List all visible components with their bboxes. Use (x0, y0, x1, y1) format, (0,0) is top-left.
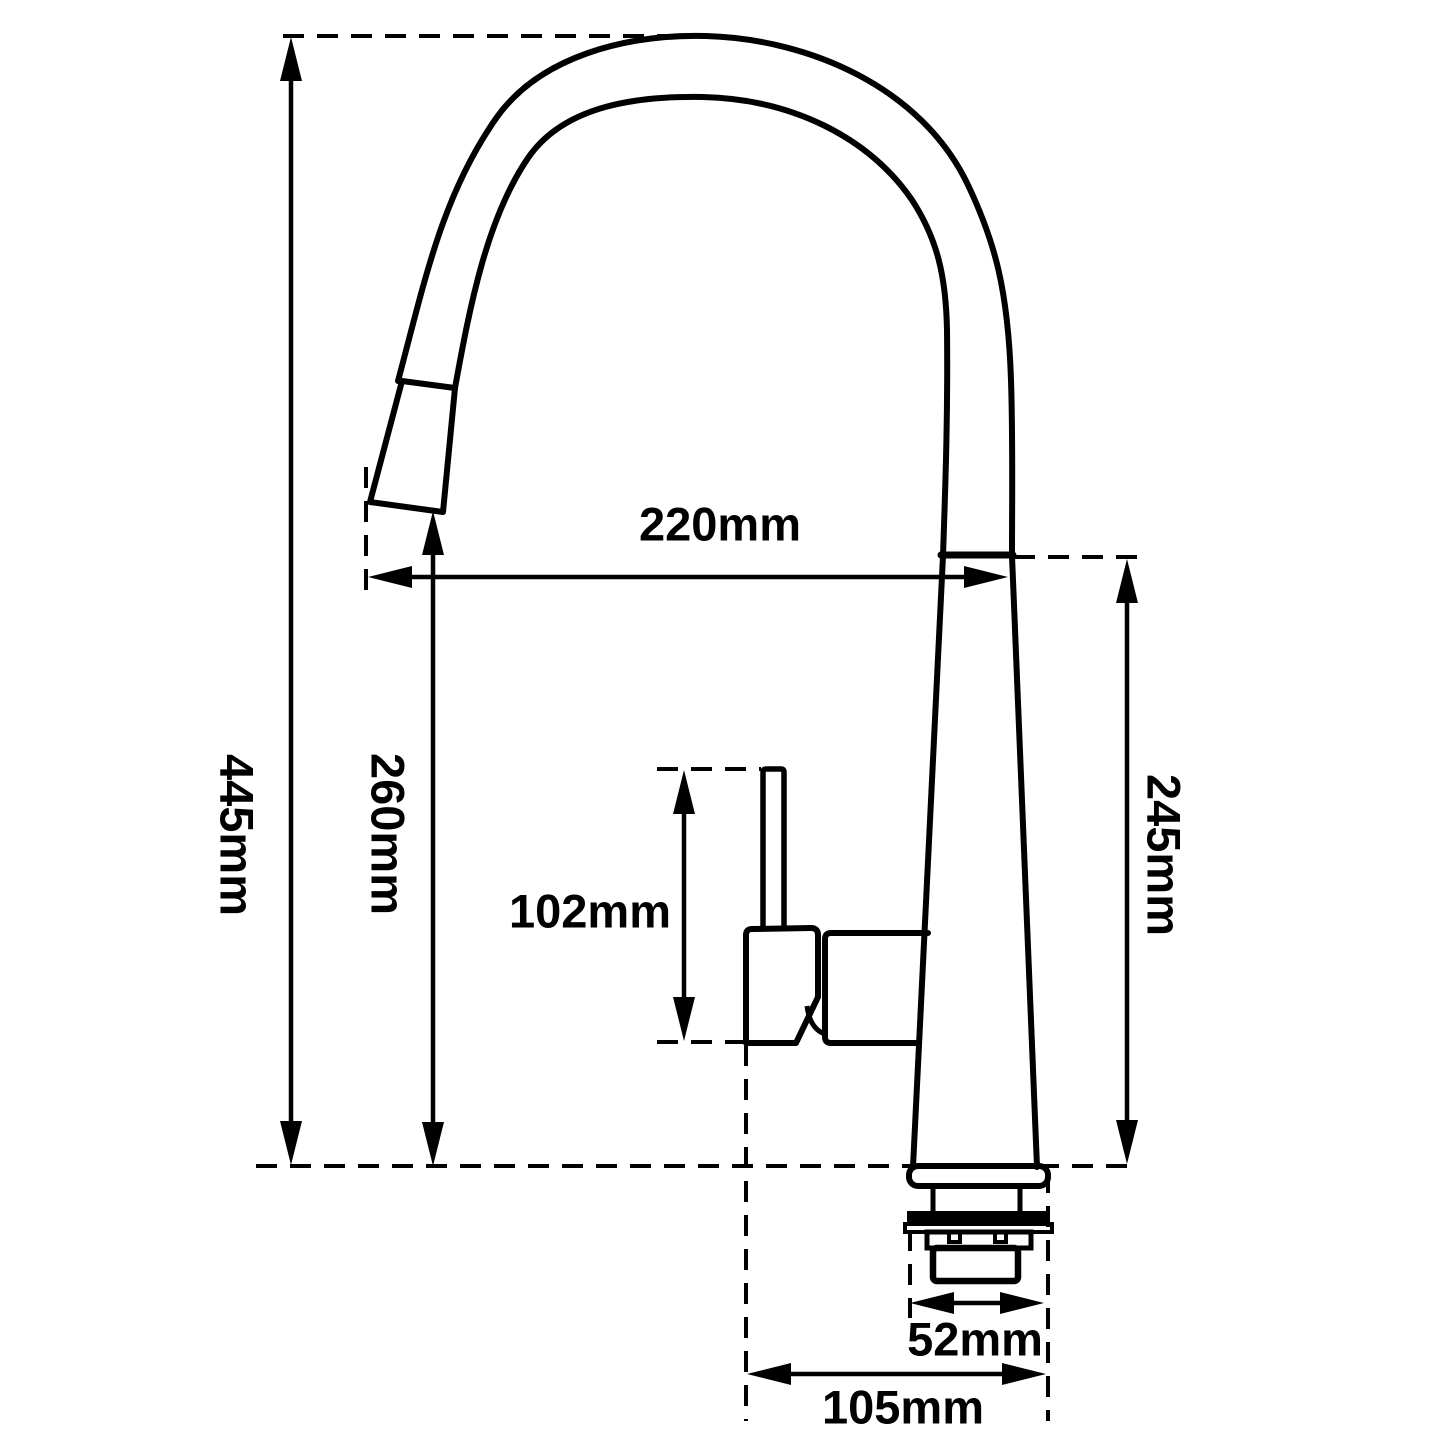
arrowhead-left-icon (747, 1363, 791, 1385)
arrowhead-down-icon (422, 1122, 444, 1166)
arrowhead-right-icon (1000, 1292, 1044, 1314)
dim-label-overall-height: 445mm (211, 754, 264, 916)
arrowhead-down-icon (280, 1121, 302, 1165)
dimension-245: 245mm (1116, 559, 1191, 1164)
arrowhead-up-icon (1116, 559, 1138, 603)
handle-block (746, 928, 818, 1043)
arrowhead-right-icon (964, 566, 1008, 588)
arrowhead-right-icon (1002, 1363, 1046, 1385)
dimension-102: 102mm (509, 770, 695, 1041)
dimension-260: 260mm (362, 511, 445, 1166)
mounting-nut-slot (995, 1232, 1006, 1242)
valve-body (825, 933, 928, 1043)
faucet-outline (370, 36, 1052, 1281)
dimension-220: 220mm (368, 498, 1008, 589)
dimension-52: 52mm (907, 1292, 1044, 1366)
dim-label-body-height: 245mm (1138, 774, 1191, 936)
arrowhead-left-icon (368, 566, 412, 588)
dimension-105: 105mm (747, 1363, 1046, 1434)
dim-label-thread-diameter: 52mm (907, 1313, 1043, 1366)
mounting-nut-slot (949, 1232, 960, 1242)
arrowhead-up-icon (673, 770, 695, 814)
drawing-canvas: 445mm 260mm 220mm 245mm 102mm 52mm 105mm (0, 0, 1445, 1445)
faucet-dimension-drawing: 445mm 260mm 220mm 245mm 102mm 52mm 105mm (0, 0, 1445, 1445)
arrowhead-up-icon (422, 511, 444, 555)
supply-connector (933, 1248, 1018, 1281)
arrowhead-down-icon (673, 997, 695, 1041)
lever-rod (763, 769, 784, 929)
arrowhead-down-icon (1116, 1120, 1138, 1164)
dim-label-spout-reach: 220mm (639, 498, 801, 551)
mounting-flange (909, 1166, 1048, 1186)
arrowhead-up-icon (280, 37, 302, 81)
dim-label-spout-tip-height: 260mm (362, 753, 415, 915)
arrowhead-left-icon (910, 1292, 954, 1314)
dimension-445: 445mm (211, 37, 303, 1165)
spray-head (370, 381, 455, 512)
dim-label-base-spread: 105mm (822, 1381, 984, 1434)
dim-label-handle-height: 102mm (509, 885, 671, 938)
spout-inner-curve (455, 97, 947, 1167)
